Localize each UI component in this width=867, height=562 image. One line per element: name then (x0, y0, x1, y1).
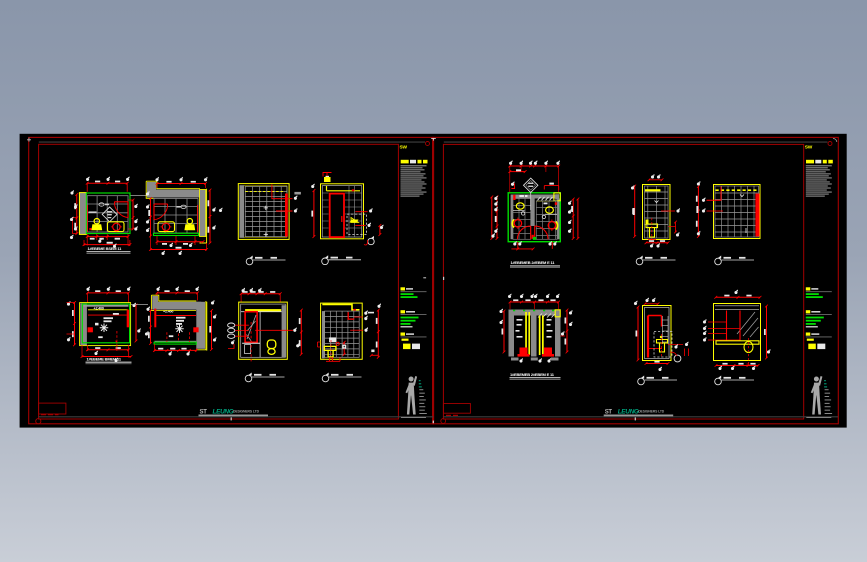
svg-text:DESIGNERS LTD: DESIGNERS LTD (233, 410, 260, 414)
svg-text:SW: SW (400, 145, 408, 151)
svg-text:+2.400: +2.400 (163, 309, 173, 313)
svg-text:1#EBEMEB 2#EBEM E 11: 1#EBEMEB 2#EBEM E 11 (510, 372, 555, 377)
svg-text:DESIGNERS LTD: DESIGNERS LTD (638, 410, 665, 414)
svg-text:ST: ST (200, 409, 208, 415)
svg-text:1#EBEME BSEM 11: 1#EBEME BSEM 11 (88, 246, 123, 251)
svg-text:ST: ST (605, 409, 613, 415)
svg-text:LEUNG: LEUNG (618, 409, 639, 416)
svg-text:1#EBEMEB 2#EBEM E 11: 1#EBEMEB 2#EBEM E 11 (511, 260, 556, 265)
svg-text:1#EBEME BMEM 11: 1#EBEME BMEM 11 (87, 356, 122, 361)
svg-text:LEUNG: LEUNG (213, 409, 234, 416)
svg-text:SW: SW (805, 145, 813, 151)
